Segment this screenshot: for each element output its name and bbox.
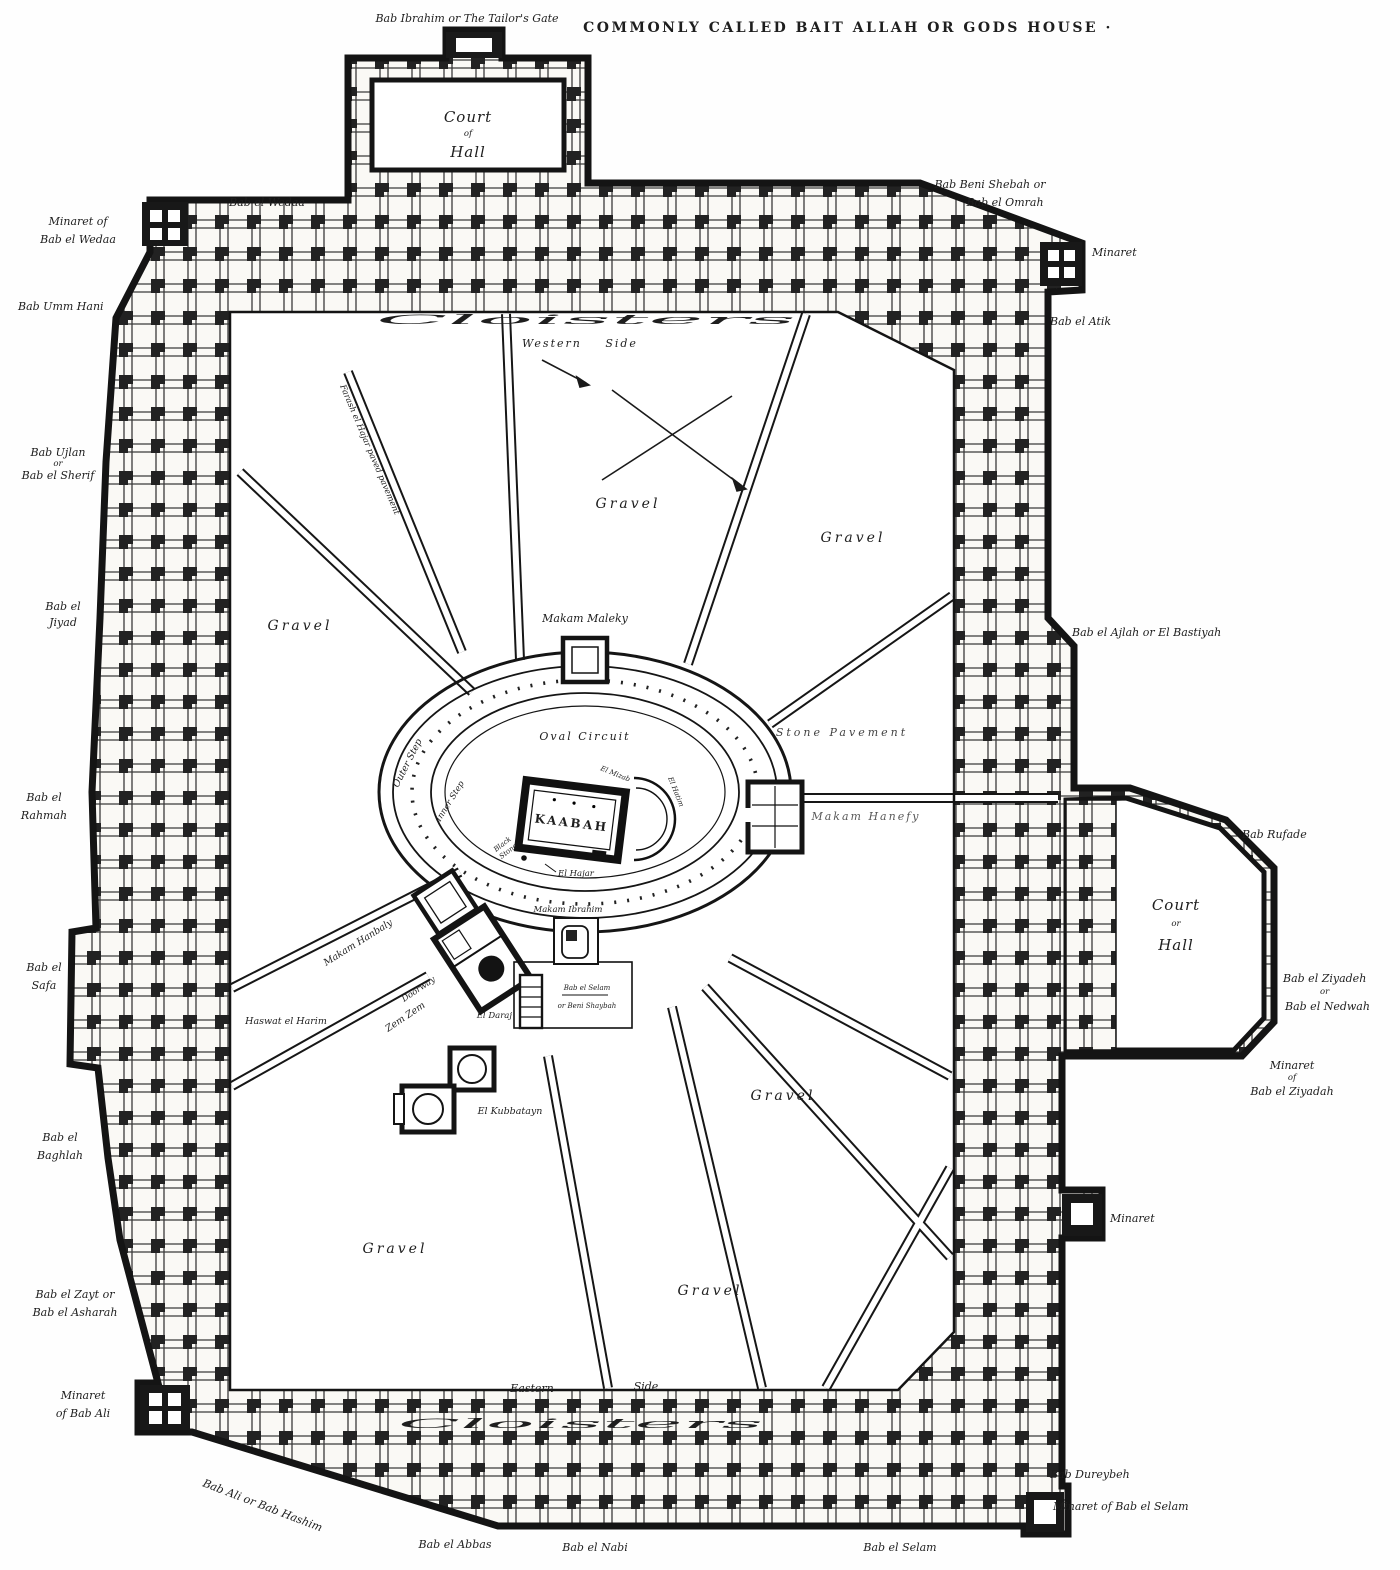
label-bab-atik: Bab el Atik	[1049, 315, 1111, 328]
label-side: Side	[634, 1380, 659, 1393]
plan-page: KAABAH	[0, 0, 1400, 1570]
minaret-nw	[142, 202, 188, 246]
label-oval-circuit: Oval Circuit	[539, 730, 630, 743]
label-bab-ujlan-2: or	[53, 459, 63, 469]
label-bab-ziyadeh-2: or	[1320, 987, 1330, 997]
label-bab-umm-hani: Bab Umm Hani	[17, 300, 104, 313]
label-court-top-3: Hall	[449, 143, 486, 161]
label-court-top-1: Court	[444, 108, 492, 126]
label-bab-safa-2: Safa	[32, 979, 57, 992]
plan-svg: KAABAH	[0, 0, 1400, 1570]
label-el-hajar: El Hajar	[557, 869, 595, 879]
label-bab-ibrahim: Bab Ibrahim or The Tailor's Gate	[374, 12, 559, 25]
label-beni-shebah-2: Bab el Omrah	[965, 196, 1043, 209]
label-bab-zayt-2: Bab el Asharah	[32, 1306, 118, 1319]
label-minaret-wedaa-2: Bab el Wedaa	[39, 233, 116, 246]
minaret-east	[1062, 1194, 1102, 1236]
label-makam-maleky: Makam Maleky	[541, 612, 628, 625]
label-court-right-1: Court	[1152, 896, 1200, 914]
label-minaret-bab-selam: Minaret of Bab el Selam	[1052, 1500, 1189, 1513]
makam-ibrahim-structure	[554, 918, 598, 964]
label-bab-zayt-1: Bab el Zayt or	[35, 1288, 116, 1301]
label-minaret-ziyadah-3: Bab el Ziyadah	[1249, 1085, 1333, 1098]
label-minaret-bab-ali-1: Minaret	[60, 1389, 106, 1402]
label-minaret-wedaa-1: Minaret of	[48, 215, 110, 228]
label-bab-baghlah-1: Bab el	[41, 1131, 78, 1144]
label-bab-selam-bottom: Bab el Selam	[862, 1541, 936, 1554]
label-gravel-6: Gravel	[678, 1283, 743, 1299]
label-bab-ali-hashim: Bab Ali or Bab Hashim	[200, 1476, 324, 1534]
label-cloisters-bottom: Cloisters	[398, 1417, 765, 1432]
label-bab-selam-inner-1: Bab el Selam	[563, 984, 611, 992]
label-minaret-ne: Minaret	[1091, 246, 1137, 259]
minaret-sw	[140, 1385, 190, 1430]
kaaba-structure: KAABAH	[518, 780, 626, 860]
label-gravel-4: Gravel	[751, 1088, 816, 1104]
black-stone-mark	[521, 855, 527, 861]
label-minaret-bab-ali-2: of Bab Ali	[56, 1407, 110, 1420]
label-bab-baghlah-2: Baghlah	[36, 1149, 83, 1162]
label-bab-rahmah-2: Rahmah	[20, 809, 67, 822]
label-bab-dureybeh: Bab Dureybeh	[1049, 1468, 1130, 1481]
label-bab-safa-1: Bab el	[25, 961, 62, 974]
label-bab-rahmah-1: Bab el	[25, 791, 62, 804]
label-gravel-1: Gravel	[596, 496, 661, 512]
label-makam-ibrahim: Makam Ibrahim	[533, 905, 603, 915]
label-bab-jiyad-2: Jiyad	[47, 616, 77, 629]
label-minaret-e: Minaret	[1109, 1212, 1155, 1225]
label-bab-nabi: Bab el Nabi	[561, 1541, 627, 1554]
label-bab-selam-inner-2: or Beni Shaybah	[558, 1002, 617, 1010]
label-bab-el-wedaa: Bab el Wedaa	[228, 196, 305, 209]
makam-maleky-structure	[563, 638, 607, 682]
label-gravel-3: Gravel	[268, 618, 333, 634]
label-bab-ajlah: Bab el Ajlah or El Bastiyah	[1071, 626, 1221, 639]
label-court-right-3: Hall	[1157, 936, 1194, 954]
label-haswat-harim: Haswat el Harim	[244, 1016, 327, 1027]
makam-hanefy-structure	[744, 782, 802, 852]
minaret-ne	[1040, 242, 1082, 286]
label-el-kubbatayn: El Kubbatayn	[477, 1106, 543, 1117]
label-bab-ziyadeh-3: Bab el Nedwah	[1284, 1000, 1370, 1013]
label-minaret-ziyadah-2: of	[1288, 1073, 1298, 1083]
label-court-right-2: or	[1171, 919, 1181, 929]
label-beni-shebah-1: Bab Beni Shebah or	[933, 178, 1046, 191]
label-bab-ujlan-1: Bab Ujlan	[29, 446, 85, 459]
page-title: COMMONLY CALLED BAIT ALLAH OR GODS HOUSE…	[583, 20, 1113, 36]
label-bab-rufade: Bab Rufade	[1241, 828, 1307, 841]
label-cloisters-top: Cloisters	[376, 313, 798, 328]
label-bab-jiyad-1: Bab el	[44, 600, 81, 613]
label-bab-ziyadeh-1: Bab el Ziyadeh	[1282, 972, 1366, 985]
label-minaret-ziyadah-1: Minaret	[1269, 1059, 1315, 1072]
label-gravel-2: Gravel	[821, 530, 886, 546]
label-western-side: Western Side	[522, 337, 638, 350]
label-gravel-5: Gravel	[363, 1241, 428, 1257]
label-stone-pavement: Stone Pavement	[776, 726, 908, 739]
label-bab-abbas: Bab el Abbas	[418, 1538, 492, 1551]
label-el-daraj: El Daraj	[476, 1011, 513, 1021]
label-bab-ujlan-3: Bab el Sherif	[21, 469, 97, 482]
label-eastern: Eastern	[509, 1382, 554, 1395]
label-makam-hanefy: Makam Hanefy	[810, 810, 920, 823]
